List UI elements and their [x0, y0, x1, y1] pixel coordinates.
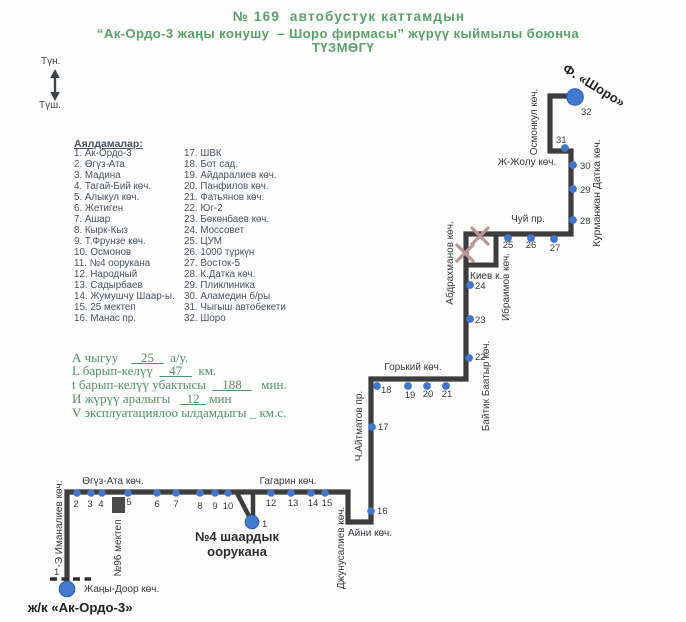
svg-text:21: 21 [442, 389, 453, 400]
svg-text:28: 28 [580, 216, 591, 227]
svg-text:Джунусалиев көч.: Джунусалиев көч. [336, 507, 347, 590]
svg-text:6: 6 [154, 499, 159, 510]
svg-text:18: 18 [381, 385, 392, 396]
svg-text:13: 13 [288, 498, 299, 509]
svg-text:Гагарин көч.: Гагарин көч. [260, 476, 317, 487]
svg-text:8: 8 [197, 501, 202, 512]
svg-text:4: 4 [98, 499, 103, 510]
svg-text:20: 20 [423, 389, 434, 400]
svg-text:оорукана: оорукана [207, 544, 267, 559]
svg-text:9: 9 [212, 501, 217, 512]
svg-text:Курманжан Датка көч.: Курманжан Датка көч. [591, 139, 603, 246]
svg-text:1: 1 [54, 567, 59, 578]
svg-text:Өгүз-Ата көч.: Өгүз-Ата көч. [82, 476, 144, 487]
svg-text:10: 10 [223, 501, 234, 512]
svg-text:Айни көч.: Айни көч. [348, 528, 392, 539]
svg-text:27: 27 [550, 243, 561, 254]
svg-text:31: 31 [556, 135, 567, 146]
svg-text:Абдрахманов көч.: Абдрахманов көч. [444, 221, 456, 304]
svg-text:17: 17 [378, 422, 389, 433]
svg-text:-Э Иманалиев көч.: -Э Иманалиев көч. [54, 480, 65, 567]
svg-text:15: 15 [322, 498, 333, 509]
svg-text:12: 12 [266, 498, 277, 509]
svg-text:Жаңы-Доор көч.: Жаңы-Доор көч. [84, 584, 159, 595]
svg-text:Осмонкул көч.: Осмонкул көч. [529, 89, 540, 156]
svg-text:5: 5 [126, 497, 131, 508]
svg-text:14: 14 [308, 498, 319, 509]
svg-text:Чуй пр.: Чуй пр. [511, 214, 545, 225]
svg-text:Ч.Айтматов пр.: Ч.Айтматов пр. [354, 391, 365, 461]
svg-text:Горький көч.: Горький көч. [384, 362, 441, 373]
svg-text:26: 26 [526, 240, 537, 251]
svg-text:3: 3 [87, 499, 92, 510]
svg-text:№4 шаардык: №4 шаардык [195, 529, 280, 544]
svg-text:Ж-Жолу көч.: Ж-Жолу көч. [498, 157, 557, 168]
svg-text:32: 32 [581, 107, 592, 118]
svg-text:24: 24 [475, 281, 486, 292]
svg-text:25: 25 [503, 240, 514, 251]
svg-text:1: 1 [262, 519, 267, 530]
svg-text:16: 16 [377, 506, 388, 517]
svg-text:ж/к «Ак-Ордо-3»: ж/к «Ак-Ордо-3» [27, 600, 133, 615]
svg-text:29: 29 [580, 185, 591, 196]
svg-text:23: 23 [475, 315, 486, 326]
svg-text:30: 30 [580, 161, 591, 172]
svg-text:22: 22 [475, 352, 486, 363]
svg-text:Ибраимов көч.: Ибраимов көч. [500, 253, 512, 321]
svg-text:2: 2 [73, 499, 78, 510]
svg-text:19: 19 [405, 390, 416, 401]
svg-text:№96 мектеп: №96 мектеп [113, 520, 124, 577]
svg-text:7: 7 [173, 499, 178, 510]
